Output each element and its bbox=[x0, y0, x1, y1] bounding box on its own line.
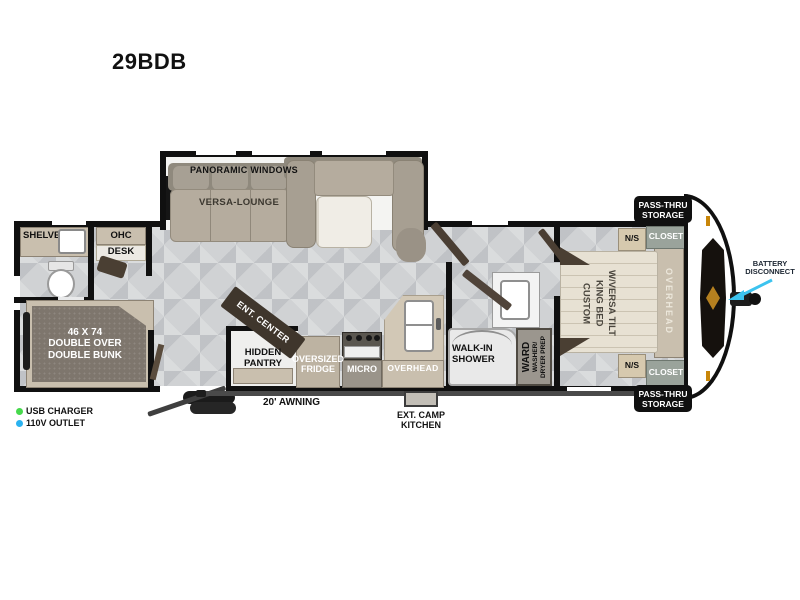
toilet-bowl bbox=[47, 269, 75, 299]
window-top-left bbox=[52, 221, 86, 225]
versa-lounge-label: VERSA-LOUNGE bbox=[199, 198, 279, 209]
outlet-label: 110V OUTLET bbox=[26, 418, 85, 428]
bed-label-line1: CUSTOM bbox=[580, 283, 591, 324]
ohc-label: OHC bbox=[96, 229, 146, 243]
stove-burner bbox=[374, 335, 380, 341]
closet-bottom-label: CLOSET bbox=[646, 364, 686, 382]
pass-thru-storage-bottom: PASS-THRU STORAGE bbox=[634, 385, 692, 412]
bunk-label: 46 X 74 DOUBLE OVER DOUBLE BUNK bbox=[32, 322, 138, 366]
cap-trim-top bbox=[706, 216, 710, 226]
fridge-label: OVERSIZED FRIDGE bbox=[291, 351, 345, 377]
ward-label-block: WARD WASHER/ DRYER PREP bbox=[516, 328, 552, 386]
panoramic-windows-label: PANORAMIC WINDOWS bbox=[190, 165, 298, 175]
ward-label: WARD bbox=[521, 336, 532, 378]
kitchen-sink bbox=[404, 300, 434, 352]
pass-thru-storage-top: PASS-THRU STORAGE bbox=[634, 196, 692, 223]
stove-front bbox=[344, 346, 380, 358]
overhead-bedroom-label: OVERHEAD bbox=[664, 268, 674, 335]
slideout-window-1 bbox=[196, 151, 236, 155]
dinette-bench-mid bbox=[314, 160, 394, 196]
slideout-window-3 bbox=[322, 151, 386, 155]
battery-disconnect-label: BATTERY DISCONNECT bbox=[740, 258, 800, 278]
ext-camp-kitchen-label: EXT. CAMP KITCHEN bbox=[390, 409, 452, 431]
walk-in-shower-label: WALK-IN SHOWER bbox=[452, 344, 495, 365]
bed-label-line2: KING BED bbox=[593, 280, 604, 326]
awning-label: 20' AWNING bbox=[263, 397, 320, 408]
window-rear-wall bbox=[14, 276, 20, 310]
bed-label-line3: W/VERSA TILT bbox=[605, 270, 616, 336]
entry-step-2 bbox=[190, 402, 236, 414]
battery-disconnect-arrow bbox=[726, 276, 778, 304]
stove-burner bbox=[356, 335, 362, 341]
floorplan-canvas: 29BDB PANORAMIC WINDOWS VERSA-LOUNGE SHE… bbox=[0, 0, 800, 600]
overhead-kitchen-label: OVERHEAD bbox=[382, 362, 444, 376]
usb-charger-label: USB CHARGER bbox=[26, 406, 93, 416]
ns-top-label: N/S bbox=[618, 230, 646, 248]
ns-bottom-label: N/S bbox=[618, 357, 646, 375]
bunk-ladder bbox=[23, 312, 30, 370]
overhead-bedroom-label-wrap: OVERHEAD bbox=[654, 246, 684, 358]
legend: USB CHARGER 110V OUTLET bbox=[16, 406, 93, 428]
awning-rail-end-left bbox=[196, 390, 206, 397]
stove-burner bbox=[366, 335, 372, 341]
ext-camp-kitchen-box bbox=[404, 391, 438, 407]
dinette-table bbox=[316, 196, 372, 248]
hidden-pantry-label: HIDDEN PANTRY bbox=[230, 346, 296, 372]
outlet-dot bbox=[16, 420, 23, 427]
rear-room-wall-top bbox=[146, 221, 152, 276]
dinette-chaise bbox=[396, 228, 426, 262]
micro-label: MICRO bbox=[342, 362, 382, 376]
model-title: 29BDB bbox=[112, 50, 187, 75]
closet-top-label: CLOSET bbox=[646, 228, 686, 246]
cap-trim-bottom bbox=[706, 371, 710, 381]
awning-rail bbox=[198, 391, 680, 396]
bath-sink bbox=[58, 229, 86, 254]
kitchen-sink-divider bbox=[406, 324, 432, 326]
slideout-window-2 bbox=[252, 151, 310, 155]
stove-burner bbox=[346, 335, 352, 341]
window-top-right bbox=[472, 221, 508, 225]
kitchen-faucet bbox=[436, 318, 441, 330]
king-bed-label: CUSTOM KING BED W/VERSA TILT bbox=[566, 258, 630, 348]
usb-charger-dot bbox=[16, 408, 23, 415]
bath-wall-vertical bbox=[88, 226, 94, 302]
rear-room-wall-bottom bbox=[148, 330, 154, 390]
washer-dryer-label: WASHER/ DRYER PREP bbox=[532, 336, 547, 378]
